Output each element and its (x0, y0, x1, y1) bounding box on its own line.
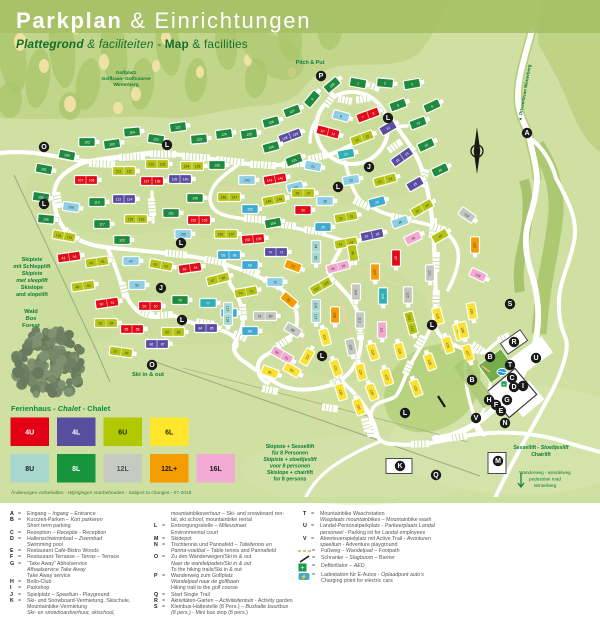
svg-text:145: 145 (192, 197, 198, 201)
svg-text:122: 122 (153, 137, 159, 142)
svg-text:Skipiste + stoeltjeslift: Skipiste + stoeltjeslift (263, 457, 316, 463)
svg-text:32: 32 (349, 214, 354, 219)
svg-text:123: 123 (196, 137, 202, 141)
svg-text:50: 50 (99, 302, 103, 307)
svg-text:70: 70 (269, 251, 273, 255)
svg-text:83: 83 (177, 331, 181, 335)
svg-text:Forest: Forest (22, 323, 40, 329)
svg-text:121: 121 (175, 125, 181, 130)
svg-text:103: 103 (109, 142, 115, 147)
svg-text:D: D (511, 384, 516, 391)
svg-text:133: 133 (160, 163, 166, 167)
svg-text:+: + (300, 565, 304, 572)
svg-text:43: 43 (61, 256, 65, 261)
svg-text:P: P (319, 73, 324, 80)
svg-text:G: G (504, 397, 510, 404)
svg-text:6L: 6L (165, 430, 174, 437)
svg-text:143: 143 (244, 179, 250, 183)
svg-text:52: 52 (135, 284, 139, 288)
svg-text:133: 133 (473, 242, 477, 248)
svg-text:153: 153 (202, 219, 208, 223)
svg-text:47: 47 (129, 260, 133, 264)
svg-text:8U: 8U (25, 466, 34, 473)
svg-text:I: I (522, 383, 524, 390)
svg-text:⚡: ⚡ (300, 573, 307, 581)
svg-text:12L+: 12L+ (161, 466, 177, 473)
svg-text:69: 69 (248, 264, 252, 268)
svg-text:152: 152 (191, 219, 197, 223)
svg-text:157: 157 (229, 233, 235, 237)
svg-text:30: 30 (301, 209, 305, 213)
svg-text:27: 27 (307, 192, 311, 196)
svg-text:109: 109 (68, 205, 74, 210)
svg-text:46: 46 (100, 259, 104, 264)
svg-text:82: 82 (166, 331, 170, 335)
svg-text:113: 113 (116, 198, 122, 202)
svg-text:55: 55 (125, 328, 129, 332)
svg-text:6U: 6U (118, 430, 127, 437)
svg-text:L: L (386, 115, 391, 122)
svg-text:125: 125 (246, 132, 252, 137)
svg-text:151: 151 (168, 212, 174, 216)
svg-text:C: C (509, 375, 514, 382)
svg-text:Winterberg: Winterberg (534, 483, 557, 488)
svg-text:35: 35 (321, 226, 325, 230)
svg-text:134: 134 (184, 165, 190, 169)
svg-text:85: 85 (210, 327, 214, 331)
svg-text:159: 159 (256, 237, 262, 241)
svg-text:106: 106 (43, 217, 49, 221)
svg-text:J: J (159, 285, 163, 292)
svg-text:Pitch & Put: Pitch & Put (296, 60, 325, 66)
svg-text:147: 147 (232, 196, 238, 200)
svg-text:102: 102 (84, 141, 90, 145)
svg-text:66: 66 (233, 254, 237, 258)
svg-text:U: U (533, 355, 538, 362)
svg-text:100: 100 (373, 269, 377, 275)
svg-text:44: 44 (72, 254, 76, 259)
svg-text:97: 97 (394, 256, 398, 260)
svg-text:146: 146 (221, 196, 227, 200)
svg-text:106: 106 (314, 303, 318, 309)
svg-text:77: 77 (206, 302, 210, 306)
svg-text:65: 65 (222, 254, 226, 258)
svg-text:84: 84 (199, 327, 203, 331)
svg-text:118: 118 (226, 317, 230, 323)
svg-text:Skipiste: Skipiste (22, 271, 43, 277)
svg-text:76: 76 (178, 299, 182, 303)
svg-text:+: + (503, 382, 506, 388)
svg-text:26: 26 (296, 192, 300, 196)
svg-text:B: B (469, 377, 474, 384)
svg-text:L: L (165, 142, 170, 149)
svg-text:94: 94 (314, 245, 318, 249)
svg-text:120: 120 (119, 239, 125, 243)
svg-text:L: L (320, 353, 325, 360)
svg-text:Skipiste: Skipiste (22, 257, 43, 263)
svg-text:met sleeplift: met sleeplift (16, 278, 48, 284)
svg-text:135: 135 (195, 165, 201, 169)
svg-text:Wanderweg - wandelweg: Wanderweg - wandelweg (519, 470, 571, 475)
svg-text:Änderungen vorbehalten - Wijzi: Änderungen vorbehalten - Wijzigingen voo… (11, 489, 192, 496)
svg-text:31: 31 (338, 216, 343, 221)
svg-text:61: 61 (153, 262, 158, 267)
svg-text:für 8 Personen: für 8 Personen (272, 451, 308, 457)
svg-text:Skislope: Skislope (21, 285, 43, 291)
svg-text:S: S (508, 301, 513, 308)
svg-text:N: N (502, 420, 507, 427)
svg-text:Bos: Bos (26, 316, 38, 322)
svg-text:110: 110 (94, 201, 100, 205)
svg-text:L: L (42, 201, 47, 208)
svg-text:132: 132 (149, 163, 155, 167)
svg-text:M: M (495, 458, 501, 465)
svg-text:mit Schlepplift: mit Schlepplift (13, 264, 50, 270)
svg-text:Skislope + chairlift: Skislope + chairlift (267, 470, 313, 476)
svg-text:57: 57 (113, 349, 117, 354)
svg-text:4L: 4L (72, 430, 81, 437)
svg-text:112: 112 (127, 170, 133, 174)
svg-text:L: L (180, 317, 185, 324)
svg-text:64: 64 (193, 265, 197, 270)
svg-text:A: A (524, 130, 529, 137)
svg-text:O: O (41, 144, 47, 151)
svg-text:75: 75 (249, 289, 254, 294)
svg-text:124: 124 (221, 132, 227, 137)
svg-text:T: T (508, 362, 513, 369)
svg-text:16L: 16L (210, 466, 223, 473)
svg-text:Chairlift: Chairlift (531, 452, 551, 458)
svg-text:28: 28 (323, 200, 327, 204)
svg-text:71: 71 (280, 251, 284, 255)
svg-text:140: 140 (183, 178, 189, 182)
svg-text:138: 138 (155, 180, 161, 184)
svg-text:80: 80 (269, 315, 273, 319)
svg-text:117: 117 (226, 306, 230, 312)
svg-text:pedestrian road: pedestrian road (529, 477, 561, 482)
svg-text:158: 158 (244, 238, 250, 242)
svg-text:155: 155 (180, 233, 186, 237)
svg-text:79: 79 (258, 315, 262, 319)
svg-text:62: 62 (164, 264, 169, 269)
svg-text:150: 150 (247, 208, 253, 212)
svg-text:Golfplatz: Golfplatz (116, 70, 137, 76)
svg-text:Skipiste + Sessellift: Skipiste + Sessellift (266, 444, 315, 450)
svg-text:for 8 persons: for 8 persons (274, 477, 307, 483)
svg-text:87: 87 (161, 343, 165, 347)
svg-text:108: 108 (89, 179, 95, 183)
svg-text:116: 116 (139, 218, 145, 222)
svg-text:45: 45 (89, 261, 93, 266)
svg-text:Sessellift - Stoeltjeslift: Sessellift - Stoeltjeslift (513, 445, 569, 451)
svg-text:105: 105 (406, 292, 410, 298)
svg-text:48: 48 (75, 285, 79, 290)
svg-text:137: 137 (144, 180, 150, 184)
svg-text:63: 63 (182, 267, 186, 272)
svg-text:voor 8 personen: voor 8 personen (270, 464, 310, 470)
svg-text:109: 109 (381, 293, 385, 299)
svg-text:74: 74 (238, 291, 243, 296)
svg-text:101: 101 (428, 270, 432, 276)
svg-text:111: 111 (116, 170, 121, 174)
svg-text:Wald: Wald (24, 309, 38, 315)
svg-text:60: 60 (154, 305, 158, 309)
svg-text:117: 117 (99, 223, 105, 227)
svg-text:111: 111 (380, 327, 384, 332)
svg-text:139: 139 (172, 178, 178, 182)
svg-text:107: 107 (314, 314, 318, 320)
svg-text:110: 110 (358, 317, 362, 323)
svg-text:108: 108 (333, 312, 337, 318)
svg-text:56: 56 (136, 328, 140, 332)
svg-text:88: 88 (248, 330, 252, 334)
svg-text:136: 136 (214, 164, 220, 168)
svg-text:J: J (367, 164, 371, 171)
svg-text:41: 41 (338, 242, 343, 247)
svg-text:Ferienhaus - Chalet - Chalet: Ferienhaus - Chalet - Chalet (11, 404, 111, 413)
svg-text:51: 51 (110, 300, 114, 305)
svg-text:115: 115 (128, 218, 134, 222)
svg-text:107: 107 (78, 179, 84, 183)
svg-text:Parkplan & Einrichtungen: Parkplan & Einrichtungen (16, 8, 311, 33)
svg-text:Golfbaan- Golfcourse: Golfbaan- Golfcourse (101, 76, 150, 82)
svg-text:54: 54 (110, 322, 114, 326)
svg-text:104: 104 (129, 130, 135, 134)
svg-text:L: L (430, 322, 435, 329)
svg-text:E: E (499, 408, 504, 415)
svg-text:L: L (403, 410, 408, 417)
svg-text:53: 53 (99, 322, 103, 326)
svg-text:58: 58 (124, 351, 128, 356)
svg-text:Q: Q (433, 472, 439, 479)
svg-text:95: 95 (314, 256, 318, 260)
svg-text:and slopelift: and slopelift (16, 292, 48, 298)
svg-text:V: V (474, 415, 479, 422)
svg-text:156: 156 (218, 233, 224, 237)
svg-text:104: 104 (354, 289, 358, 295)
svg-text:72: 72 (273, 281, 277, 285)
svg-text:O: O (149, 362, 155, 369)
svg-text:12L: 12L (117, 466, 130, 473)
svg-text:H: H (486, 397, 491, 404)
svg-text:Plattegrond & faciliteiten - M: Plattegrond & faciliteiten - Map & facil… (16, 37, 248, 51)
svg-text:8L: 8L (72, 466, 81, 473)
svg-text:Winterberg: Winterberg (113, 82, 138, 88)
svg-text:L: L (179, 240, 184, 247)
svg-text:L: L (336, 184, 341, 191)
svg-text:R: R (511, 339, 516, 346)
svg-text:86: 86 (150, 343, 154, 347)
svg-text:59: 59 (143, 305, 147, 309)
svg-text:114: 114 (127, 198, 133, 202)
svg-text:K: K (397, 463, 402, 470)
svg-text:B: B (487, 354, 492, 361)
svg-text:Ski in & out: Ski in & out (132, 372, 164, 378)
svg-text:4U: 4U (25, 430, 34, 437)
svg-text:49: 49 (86, 283, 90, 288)
